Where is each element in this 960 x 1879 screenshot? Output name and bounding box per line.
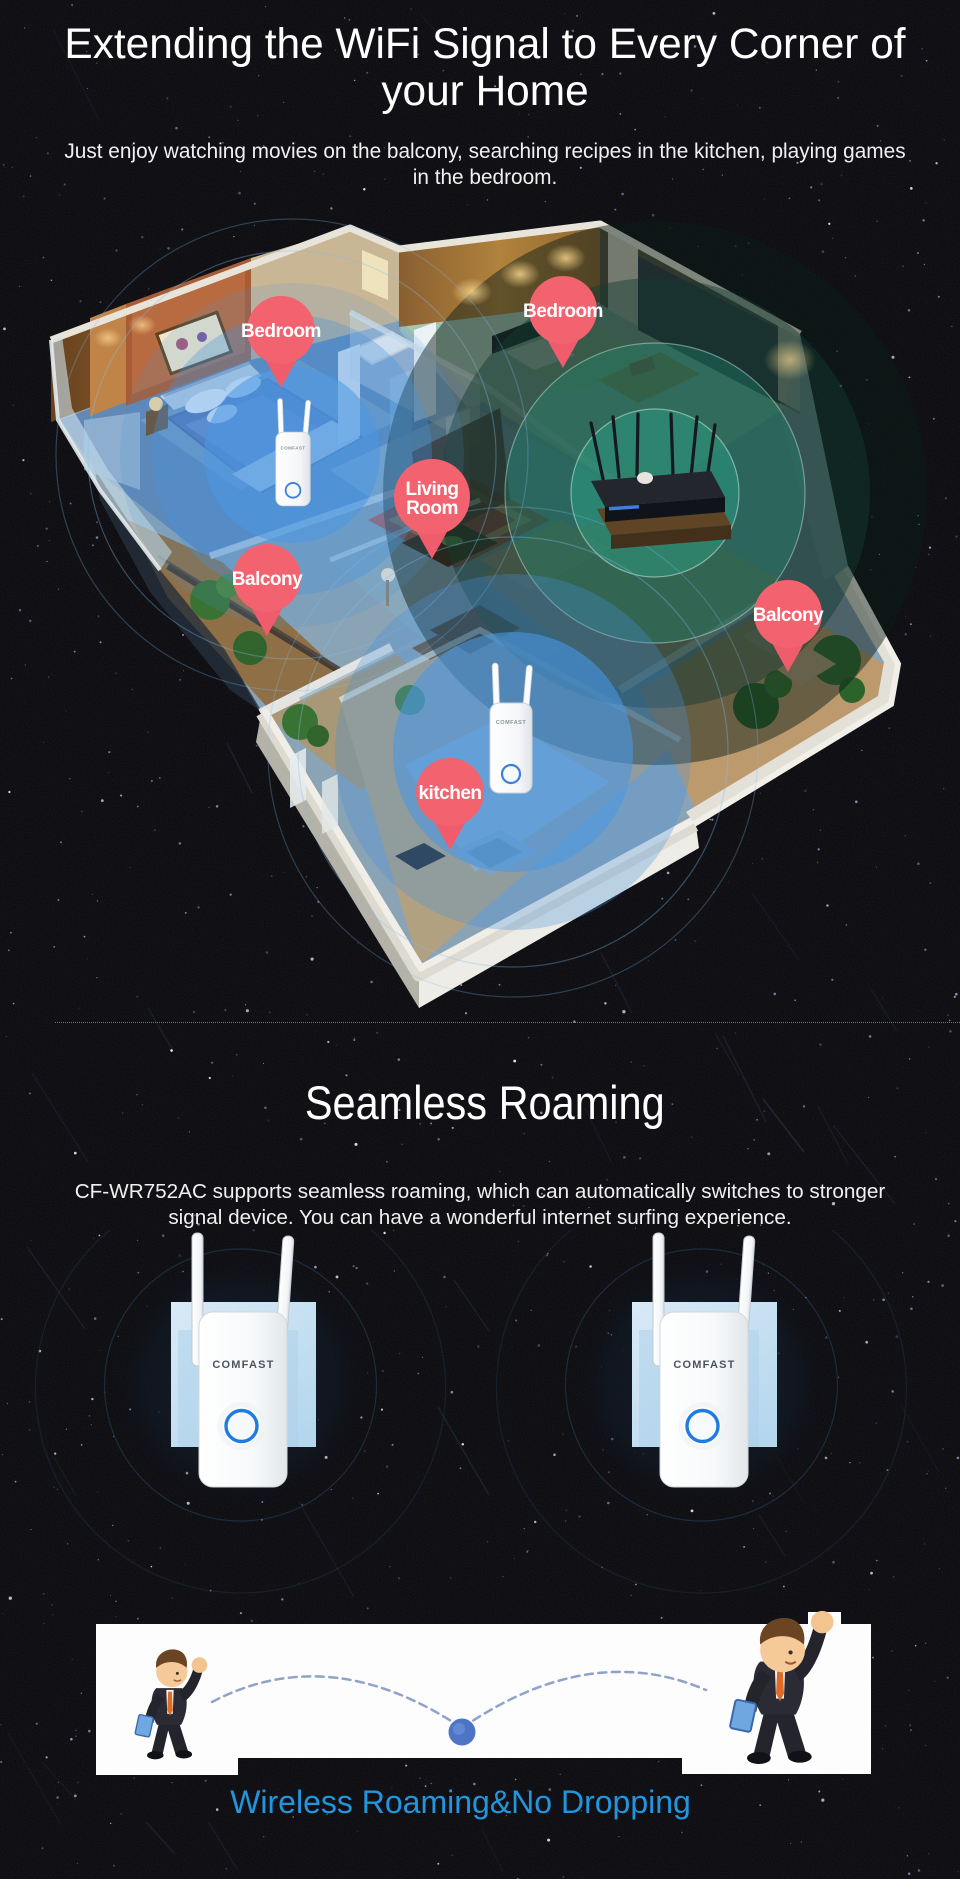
svg-text:Bedroom: Bedroom <box>523 301 603 322</box>
svg-text:COMFAST: COMFAST <box>212 1359 274 1371</box>
svg-text:Balcony: Balcony <box>753 605 824 626</box>
svg-text:COMFAST: COMFAST <box>673 1359 735 1371</box>
svg-text:COMFAST: COMFAST <box>281 445 306 450</box>
svg-text:kitchen: kitchen <box>418 783 481 804</box>
svg-text:Room: Room <box>406 498 458 519</box>
svg-text:Bedroom: Bedroom <box>241 321 321 342</box>
svg-text:Balcony: Balcony <box>232 569 303 590</box>
svg-text:COMFAST: COMFAST <box>496 720 527 726</box>
svg-text:Living: Living <box>406 479 459 500</box>
